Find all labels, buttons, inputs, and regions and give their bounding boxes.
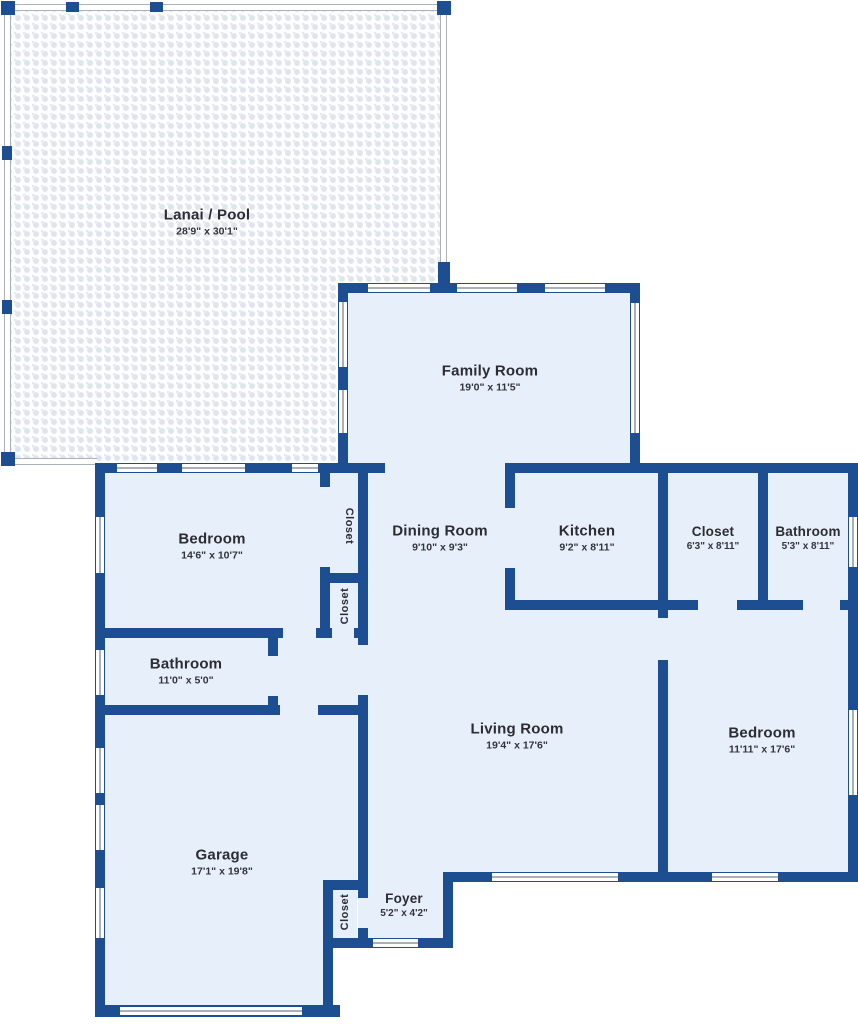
screen-post: [2, 146, 12, 160]
window-marker: [96, 517, 104, 573]
wall-segment: [443, 872, 453, 948]
window-marker: [339, 302, 347, 367]
room-dims: 9'10" x 9'3": [392, 542, 488, 554]
room-label-dining-room: Dining Room 9'10" x 9'3": [392, 523, 488, 554]
wall-segment: [758, 463, 768, 610]
room-name: Living Room: [470, 721, 563, 738]
wall-segment: [505, 463, 858, 473]
room-name: Dining Room: [392, 523, 488, 540]
room-label-foyer: Foyer 5'2" x 4'2": [380, 891, 428, 919]
room-dims: 11'11" x 17'6": [728, 744, 795, 756]
room-name: Bedroom: [728, 725, 795, 742]
wall-segment: [323, 880, 367, 890]
window-marker: [182, 464, 245, 472]
room-label-garage: Garage 17'1" x 19'8": [191, 847, 253, 878]
window-marker: [492, 873, 618, 881]
screen-post: [66, 2, 79, 12]
door-opening: [698, 600, 737, 610]
room-name: Bathroom: [775, 524, 840, 539]
window-marker: [339, 390, 347, 433]
room-label-closet-b: Closet: [339, 588, 351, 625]
window-marker: [117, 464, 157, 472]
room-dims: 19'4" x 17'6": [470, 740, 563, 752]
room-label-closet-right: Closet 6'3" x 8'11": [687, 524, 740, 552]
garage-door: [120, 1007, 302, 1015]
room-label-bedroom-left: Bedroom 14'6" x 10'7": [178, 531, 245, 562]
room-dims: 5'3" x 8'11": [775, 541, 840, 552]
window-marker: [712, 873, 778, 881]
window-marker: [457, 284, 517, 292]
window-marker: [96, 748, 104, 793]
wall-segment: [658, 463, 668, 610]
room-name: Closet: [687, 524, 740, 539]
lanai-pool-area: [5, 292, 340, 463]
lanai-pool-area: [5, 5, 447, 292]
screen-post: [2, 300, 12, 314]
room-label-bathroom-top: Bathroom 5'3" x 8'11": [775, 524, 840, 552]
door-opening: [320, 487, 330, 567]
room-label-kitchen: Kitchen 9'2" x 8'11": [559, 523, 615, 554]
room-label-lanai: Lanai / Pool 28'9" x 30'1": [164, 207, 251, 238]
wall-segment: [323, 880, 333, 1017]
door-opening: [358, 645, 368, 695]
screen-wall: [5, 458, 97, 465]
door-opening: [280, 705, 318, 715]
room-name: Family Room: [442, 363, 538, 380]
wall-segment: [358, 463, 368, 938]
door-opening: [283, 628, 316, 638]
floor-plan: Lanai / Pool 28'9" x 30'1" Family Room 1…: [0, 0, 858, 1024]
screen-wall: [440, 5, 447, 292]
wall-segment: [95, 628, 368, 638]
room-label-family-room: Family Room 19'0" x 11'5": [442, 363, 538, 394]
wall-segment: [505, 463, 515, 508]
room-label-closet-entry: Closet: [339, 894, 351, 931]
garage-area: [105, 880, 323, 1005]
room-name: Lanai / Pool: [164, 207, 251, 224]
screen-post: [1, 452, 15, 466]
room-label-closet-a: Closet: [343, 508, 355, 545]
room-dims: 28'9" x 30'1": [164, 226, 251, 238]
room-dims: 9'2" x 8'11": [559, 542, 615, 554]
door-opening: [332, 628, 354, 638]
room-label-bathroom-left: Bathroom 11'0" x 5'0": [150, 656, 222, 687]
room-name: Garage: [191, 847, 253, 864]
window-marker: [368, 284, 430, 292]
screen-post: [150, 2, 163, 12]
window-marker: [292, 464, 318, 472]
wall-segment: [95, 705, 368, 715]
room-label-bedroom-right: Bedroom 11'11" x 17'6": [728, 725, 795, 756]
room-name: Kitchen: [559, 523, 615, 540]
room-dims: 5'2" x 4'2": [380, 908, 428, 919]
front-door: [373, 939, 418, 947]
wall-segment: [505, 568, 515, 610]
window-marker: [96, 888, 104, 938]
window-marker: [631, 303, 639, 433]
screen-post: [1, 1, 15, 15]
screen-post: [437, 1, 451, 15]
room-label-living-room: Living Room 19'4" x 17'6": [470, 721, 563, 752]
window-marker: [96, 805, 104, 850]
wall-segment: [320, 573, 368, 583]
door-opening: [268, 656, 278, 696]
room-name: Bedroom: [178, 531, 245, 548]
room-name: Foyer: [380, 891, 428, 906]
room-dims: 19'0" x 11'5": [442, 382, 538, 394]
room-dims: 17'1" x 19'8": [191, 866, 253, 878]
screen-wall: [4, 5, 11, 463]
door-opening: [803, 600, 840, 610]
room-dims: 6'3" x 8'11": [687, 541, 740, 552]
window-marker: [849, 710, 857, 795]
window-marker: [545, 284, 605, 292]
room-name: Bathroom: [150, 656, 222, 673]
window-marker: [96, 650, 104, 695]
window-marker: [849, 517, 857, 567]
room-dims: 14'6" x 10'7": [178, 550, 245, 562]
door-opening: [358, 898, 368, 928]
room-dims: 11'0" x 5'0": [150, 675, 222, 687]
door-opening: [658, 618, 668, 660]
